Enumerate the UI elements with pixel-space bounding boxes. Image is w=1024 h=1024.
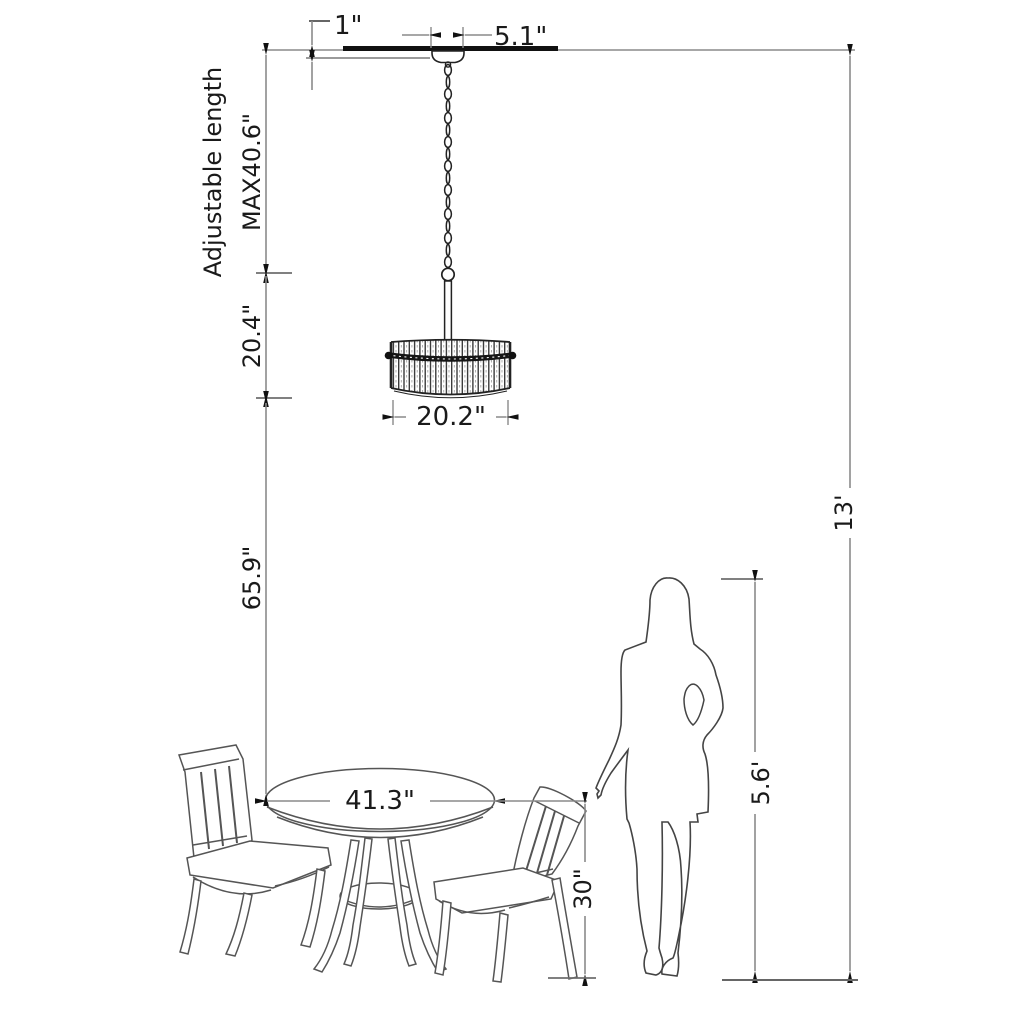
- chandelier: [385, 51, 517, 398]
- label-adjustable-length: Adjustable length: [199, 67, 227, 278]
- label-table-width: 41.3": [345, 786, 415, 816]
- diagram-svg: 1" 5.1" Adjustable length MAX40.6" 20.4"…: [0, 0, 1024, 1024]
- ball-connector: [442, 268, 454, 280]
- label-person-height: 5.6': [747, 761, 775, 806]
- label-max-length: MAX40.6": [238, 113, 266, 231]
- chair-leg: [180, 879, 201, 954]
- dim-canopy-width: [402, 27, 492, 48]
- dimension-diagram: 1" 5.1" Adjustable length MAX40.6" 20.4"…: [0, 0, 1024, 1024]
- chair-leg: [435, 901, 451, 975]
- woman-outline: [596, 578, 723, 976]
- label-clearance: 65.9": [238, 546, 266, 610]
- label-shade-width: 20.2": [416, 402, 486, 432]
- chair-leg: [493, 913, 508, 982]
- band-knob-left: [385, 352, 393, 360]
- drum-shade: [385, 340, 517, 398]
- dim-drop-offset: [309, 21, 330, 90]
- label-ceiling-height: 13': [830, 494, 858, 531]
- band-knob-right: [509, 352, 517, 360]
- label-table-height: 30": [569, 868, 597, 910]
- chair-leg: [301, 869, 325, 947]
- label-drop-offset: 1": [334, 11, 363, 41]
- ceiling: [262, 49, 855, 59]
- woman-silhouette: [596, 578, 723, 976]
- label-shade-height: 20.4": [238, 304, 266, 368]
- chair-leg: [226, 893, 252, 956]
- canopy: [432, 51, 464, 63]
- label-canopy-width: 5.1": [494, 22, 547, 52]
- chair-seat: [434, 868, 559, 913]
- stem-rod: [445, 281, 452, 342]
- table-ring-stretcher: [340, 883, 418, 909]
- chain: [445, 65, 452, 268]
